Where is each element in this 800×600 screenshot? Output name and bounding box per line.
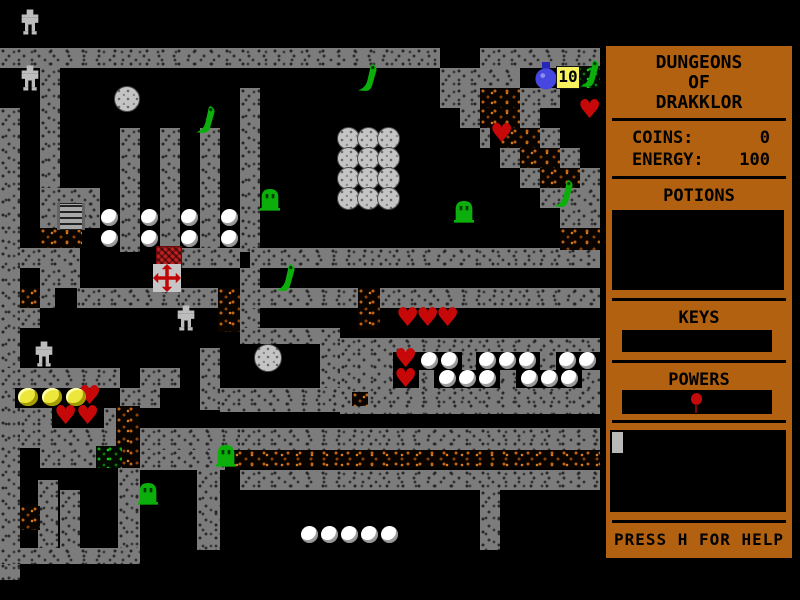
heart-sprite	[396, 308, 416, 328]
divider	[612, 520, 786, 523]
heart-sprite	[76, 406, 96, 426]
ball-sprite	[114, 86, 140, 112]
divider	[612, 360, 786, 363]
wall-block	[500, 148, 520, 168]
coins-value: 0	[760, 128, 770, 148]
slug-sprite	[580, 58, 600, 90]
wall-block	[140, 368, 180, 388]
ghost-sprite	[454, 198, 474, 224]
divider	[612, 420, 786, 423]
wall-block	[40, 448, 96, 468]
heart-sprite	[416, 308, 436, 328]
pearl-sprite	[301, 526, 318, 543]
rubble-patch	[480, 88, 520, 108]
wall-block	[440, 68, 520, 88]
wall-block	[197, 470, 220, 550]
golem-sprite	[34, 340, 54, 368]
potions-header: POTIONS	[606, 186, 792, 206]
pearl-sprite	[421, 352, 438, 369]
heart-sprite	[490, 124, 510, 144]
pearl-sprite	[101, 209, 118, 226]
pearl-sprite	[221, 209, 238, 226]
energy-label: ENERGY:	[632, 150, 704, 170]
wall-block	[0, 108, 20, 580]
divider	[612, 298, 786, 301]
pearl-sprite	[459, 370, 476, 387]
heart-sprite	[54, 406, 74, 426]
ghost-sprite	[260, 186, 280, 212]
wall-block	[560, 148, 580, 168]
rubble-patch	[358, 288, 380, 330]
wall-block	[120, 388, 160, 408]
pearl-sprite	[579, 352, 596, 369]
rubble-patch	[225, 450, 600, 468]
golem-sprite	[176, 304, 196, 332]
ghost-sprite	[216, 442, 236, 468]
game-screen: 10 DUNGEONS OF DRAKKLOR COINS: 0 ENERGY:…	[0, 0, 800, 600]
coins-row: COINS: 0	[632, 128, 770, 148]
wall-block	[460, 108, 480, 128]
pearl-sprite	[221, 230, 238, 247]
ladder-sprite	[57, 203, 85, 230]
slug-sprite	[358, 62, 378, 94]
pearl-sprite	[321, 526, 338, 543]
pearl-sprite	[101, 230, 118, 247]
slug-sprite	[276, 262, 296, 294]
wall-block	[38, 480, 58, 550]
wall-block	[0, 368, 120, 388]
pearl-sprite	[141, 209, 158, 226]
wall-block	[180, 248, 240, 268]
wall-block	[0, 548, 140, 564]
wall-block	[120, 128, 140, 252]
pearl-sprite	[499, 352, 516, 369]
wall-block	[480, 490, 500, 550]
coin-sprite	[18, 388, 38, 406]
pearl-sprite	[479, 370, 496, 387]
wall-block	[240, 288, 360, 308]
heart-sprite	[394, 369, 414, 389]
pearl-sprite	[439, 370, 456, 387]
golem-sprite	[20, 64, 40, 92]
ball-sprite	[377, 187, 400, 210]
pearl-sprite	[181, 209, 198, 226]
wall-block	[20, 308, 40, 328]
powers-inventory-box	[622, 390, 772, 414]
slug-sprite	[196, 104, 216, 136]
floor-pocket	[55, 288, 77, 308]
wall-block	[540, 128, 560, 148]
wall-block	[118, 468, 140, 548]
heart-sprite	[578, 100, 598, 120]
cross-sprite	[153, 264, 181, 292]
pearl-sprite	[141, 230, 158, 247]
potions-inventory-box	[612, 210, 784, 290]
coin-sprite	[66, 388, 86, 406]
ball-sprite	[254, 344, 282, 372]
pearl-sprite	[381, 526, 398, 543]
wall-block	[240, 428, 600, 450]
power-balloon-icon	[691, 393, 702, 405]
wall-block	[250, 248, 600, 268]
pearl-sprite	[521, 370, 538, 387]
rubble-patch	[20, 288, 40, 308]
wall-block	[580, 168, 600, 188]
pearl-sprite	[181, 230, 198, 247]
game-title-line1: DUNGEONS	[606, 52, 792, 73]
wall-block	[240, 470, 600, 490]
status-sidebar: DUNGEONS OF DRAKKLOR COINS: 0 ENERGY: 10…	[604, 44, 794, 560]
dungeon-map-viewport[interactable]: 10	[0, 0, 600, 600]
message-box	[610, 430, 786, 512]
wall-block	[160, 128, 180, 252]
wall-block	[140, 450, 225, 470]
powers-header: POWERS	[606, 370, 792, 390]
energy-value: 100	[739, 150, 770, 170]
golem-sprite	[20, 8, 40, 36]
moss-patch	[96, 446, 122, 468]
wall-block	[20, 428, 120, 448]
pearl-sprite	[479, 352, 496, 369]
wall-block	[20, 408, 56, 428]
pearl-sprite	[519, 352, 536, 369]
wall-block	[520, 168, 540, 188]
wall-block	[240, 328, 320, 344]
wall-block	[520, 108, 540, 128]
wall-block	[560, 208, 600, 228]
coins-label: COINS:	[632, 128, 693, 148]
pearl-sprite	[441, 352, 458, 369]
heart-sprite	[436, 308, 456, 328]
rubble-patch	[560, 228, 600, 250]
ghost-sprite	[138, 480, 158, 506]
energy-row: ENERGY: 100	[632, 150, 770, 170]
wall-block	[220, 388, 340, 412]
wall-block	[40, 68, 60, 188]
pearl-sprite	[361, 526, 378, 543]
pearl-sprite	[541, 370, 558, 387]
wall-block	[200, 128, 220, 252]
wall-block	[240, 88, 260, 252]
rubble-patch	[20, 506, 40, 530]
rubble-patch	[40, 228, 82, 248]
wall-block	[520, 88, 560, 108]
pearl-sprite	[341, 526, 358, 543]
counter-sprite: 10	[556, 66, 580, 89]
wall-block	[20, 248, 80, 268]
game-title-line2: OF	[606, 72, 792, 93]
wall-block	[60, 490, 80, 550]
scroll-marker	[612, 432, 623, 453]
rubble-patch	[352, 392, 368, 406]
wall-block	[200, 348, 220, 410]
game-title-line3: DRAKKLOR	[606, 92, 792, 113]
help-hint: PRESS H FOR HELP	[606, 530, 792, 549]
keys-header: KEYS	[606, 308, 792, 328]
pearl-sprite	[559, 352, 576, 369]
divider	[612, 118, 786, 121]
rubble-patch	[218, 288, 240, 332]
rubble-patch	[520, 148, 560, 168]
flask-sprite	[534, 62, 558, 90]
wall-block	[440, 88, 480, 108]
slug-sprite	[554, 178, 574, 210]
divider	[612, 176, 786, 179]
keys-inventory-box	[622, 330, 772, 352]
coin-sprite	[42, 388, 62, 406]
pearl-sprite	[561, 370, 578, 387]
